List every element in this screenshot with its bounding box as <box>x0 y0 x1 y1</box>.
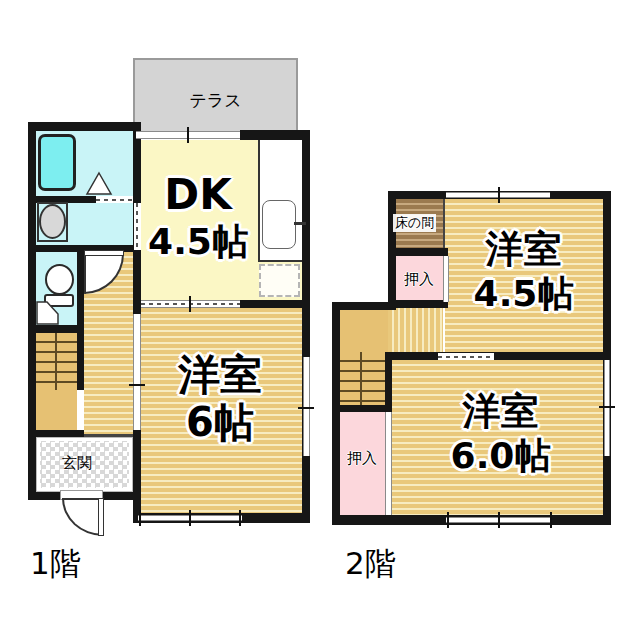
window-tick <box>187 127 189 143</box>
tokonoma-label: 床の間 <box>393 214 436 232</box>
stairs-1f-divider <box>55 333 57 390</box>
stairs-2f-upper-run <box>388 308 443 352</box>
tokonoma-edge <box>443 199 445 248</box>
washbasin <box>39 204 66 239</box>
wall <box>28 492 60 500</box>
wall <box>240 130 310 140</box>
wall <box>332 302 396 310</box>
window-tick <box>599 406 615 408</box>
kitchen-faucet <box>294 222 306 225</box>
window-tick <box>139 510 141 526</box>
bath-folding-door <box>85 171 113 196</box>
front-door-arc <box>62 498 103 536</box>
room6-label-line1: 洋室 <box>150 352 290 398</box>
room45-label-line2: 4.5帖 <box>451 274 596 314</box>
front-door-leaf <box>98 498 104 536</box>
stairs-2f-landing <box>340 310 388 352</box>
room6-label-line2: 6帖 <box>150 400 290 444</box>
room60-label-line1: 洋室 <box>428 390 573 432</box>
kitchen-sink <box>262 200 296 249</box>
floor-plan: テラス <box>0 0 640 640</box>
bath-door-track <box>96 199 133 201</box>
wall <box>77 245 84 390</box>
dk-label-line1: DK <box>138 172 258 218</box>
closet-lower-label: 押入 <box>337 449 387 468</box>
room45-label-line1: 洋室 <box>451 228 596 270</box>
hall-room6-sliding-door <box>133 314 141 430</box>
floor1-label: 1階 <box>30 543 81 585</box>
floor2-label: 2階 <box>345 543 396 585</box>
window-tick <box>239 510 241 526</box>
dk-label-line2: 4.5帖 <box>138 222 258 262</box>
window-tick <box>447 512 449 528</box>
room45-room60-track <box>438 356 494 358</box>
room60-right-window <box>604 360 610 456</box>
wall <box>240 300 302 308</box>
refrigerator-space <box>259 264 300 297</box>
window-tick <box>498 512 500 528</box>
genkan-step-edge <box>84 434 133 437</box>
toilet-door-leaf <box>84 250 124 256</box>
terrace-label: テラス <box>133 89 298 112</box>
window-tick <box>298 407 314 409</box>
window-tick <box>189 510 191 526</box>
toilet-corner-shelf <box>36 301 59 325</box>
window-tick <box>550 512 552 528</box>
window-tick <box>189 296 191 312</box>
wall <box>302 130 310 523</box>
window-tick <box>498 187 500 203</box>
wall <box>28 325 84 333</box>
room60-label-line2: 6.0帖 <box>428 436 573 476</box>
wall <box>388 300 448 308</box>
wall <box>28 430 84 437</box>
wall <box>388 352 611 360</box>
stairs-2f-divider <box>360 352 362 405</box>
closet-upper-label: 押入 <box>394 270 444 289</box>
wall <box>28 122 36 500</box>
wall <box>28 122 140 131</box>
wall <box>385 352 392 412</box>
wall <box>332 302 340 525</box>
toilet-bowl <box>45 264 74 295</box>
window-tick <box>129 384 145 386</box>
stairs-2f-lower-run <box>340 352 385 405</box>
bathtub <box>38 134 76 191</box>
wall <box>332 405 392 412</box>
genkan-label: 玄関 <box>62 454 92 473</box>
wall <box>388 248 448 256</box>
